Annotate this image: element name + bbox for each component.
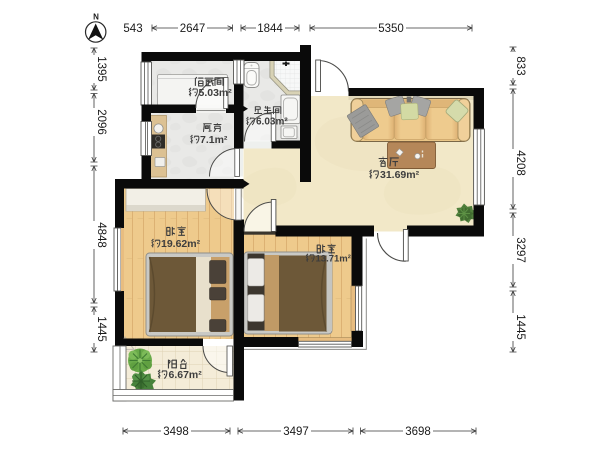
svg-text:4848: 4848	[95, 222, 107, 248]
svg-text:1395: 1395	[95, 56, 107, 82]
svg-text:5350: 5350	[378, 23, 404, 35]
svg-text:19.62m²: 19.62m²	[161, 238, 201, 250]
svg-text:3698: 3698	[405, 426, 431, 438]
svg-text:2647: 2647	[180, 23, 206, 35]
svg-text:N: N	[93, 13, 99, 22]
svg-text:31.69m²: 31.69m²	[380, 169, 420, 181]
svg-text:3497: 3497	[283, 426, 309, 438]
svg-text:13.71m²: 13.71m²	[316, 254, 351, 265]
svg-text:3498: 3498	[163, 426, 189, 438]
svg-text:3297: 3297	[514, 237, 526, 263]
svg-text:833: 833	[514, 56, 526, 75]
svg-text:2096: 2096	[95, 109, 107, 135]
svg-text:5.03m²: 5.03m²	[199, 87, 233, 99]
svg-text:1844: 1844	[257, 23, 283, 35]
svg-text:6.67m²: 6.67m²	[169, 369, 203, 381]
svg-text:6.03m²: 6.03m²	[256, 117, 288, 128]
svg-text:4208: 4208	[514, 150, 526, 176]
svg-text:7.1m²: 7.1m²	[200, 134, 228, 146]
svg-text:1445: 1445	[95, 316, 107, 342]
svg-text:543: 543	[123, 23, 142, 35]
svg-text:1445: 1445	[514, 314, 526, 340]
